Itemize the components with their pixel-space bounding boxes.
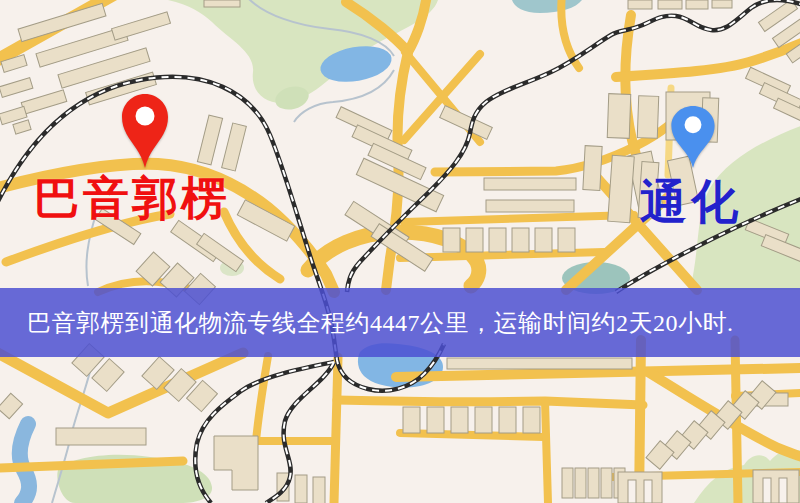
origin-pin-hole (136, 107, 155, 126)
destination-pin (671, 106, 715, 168)
route-info-text: 巴音郭楞到通化物流专线全程约4447公里，运输时间约2天20小时. (27, 307, 734, 339)
destination-pin-hole (685, 116, 702, 133)
origin-pin-icon (122, 94, 168, 168)
destination-label: 通化 (640, 179, 742, 226)
route-info-banner: 巴音郭楞到通化物流专线全程约4447公里，运输时间约2天20小时. (0, 288, 800, 357)
map-image (0, 0, 800, 503)
map-screenshot: 巴音郭楞 通化 巴音郭楞到通化物流专线全程约4447公里，运输时间约2天20小时… (0, 0, 800, 503)
destination-pin-icon (671, 106, 714, 168)
origin-pin (122, 94, 168, 168)
origin-label: 巴音郭楞 (34, 176, 230, 222)
